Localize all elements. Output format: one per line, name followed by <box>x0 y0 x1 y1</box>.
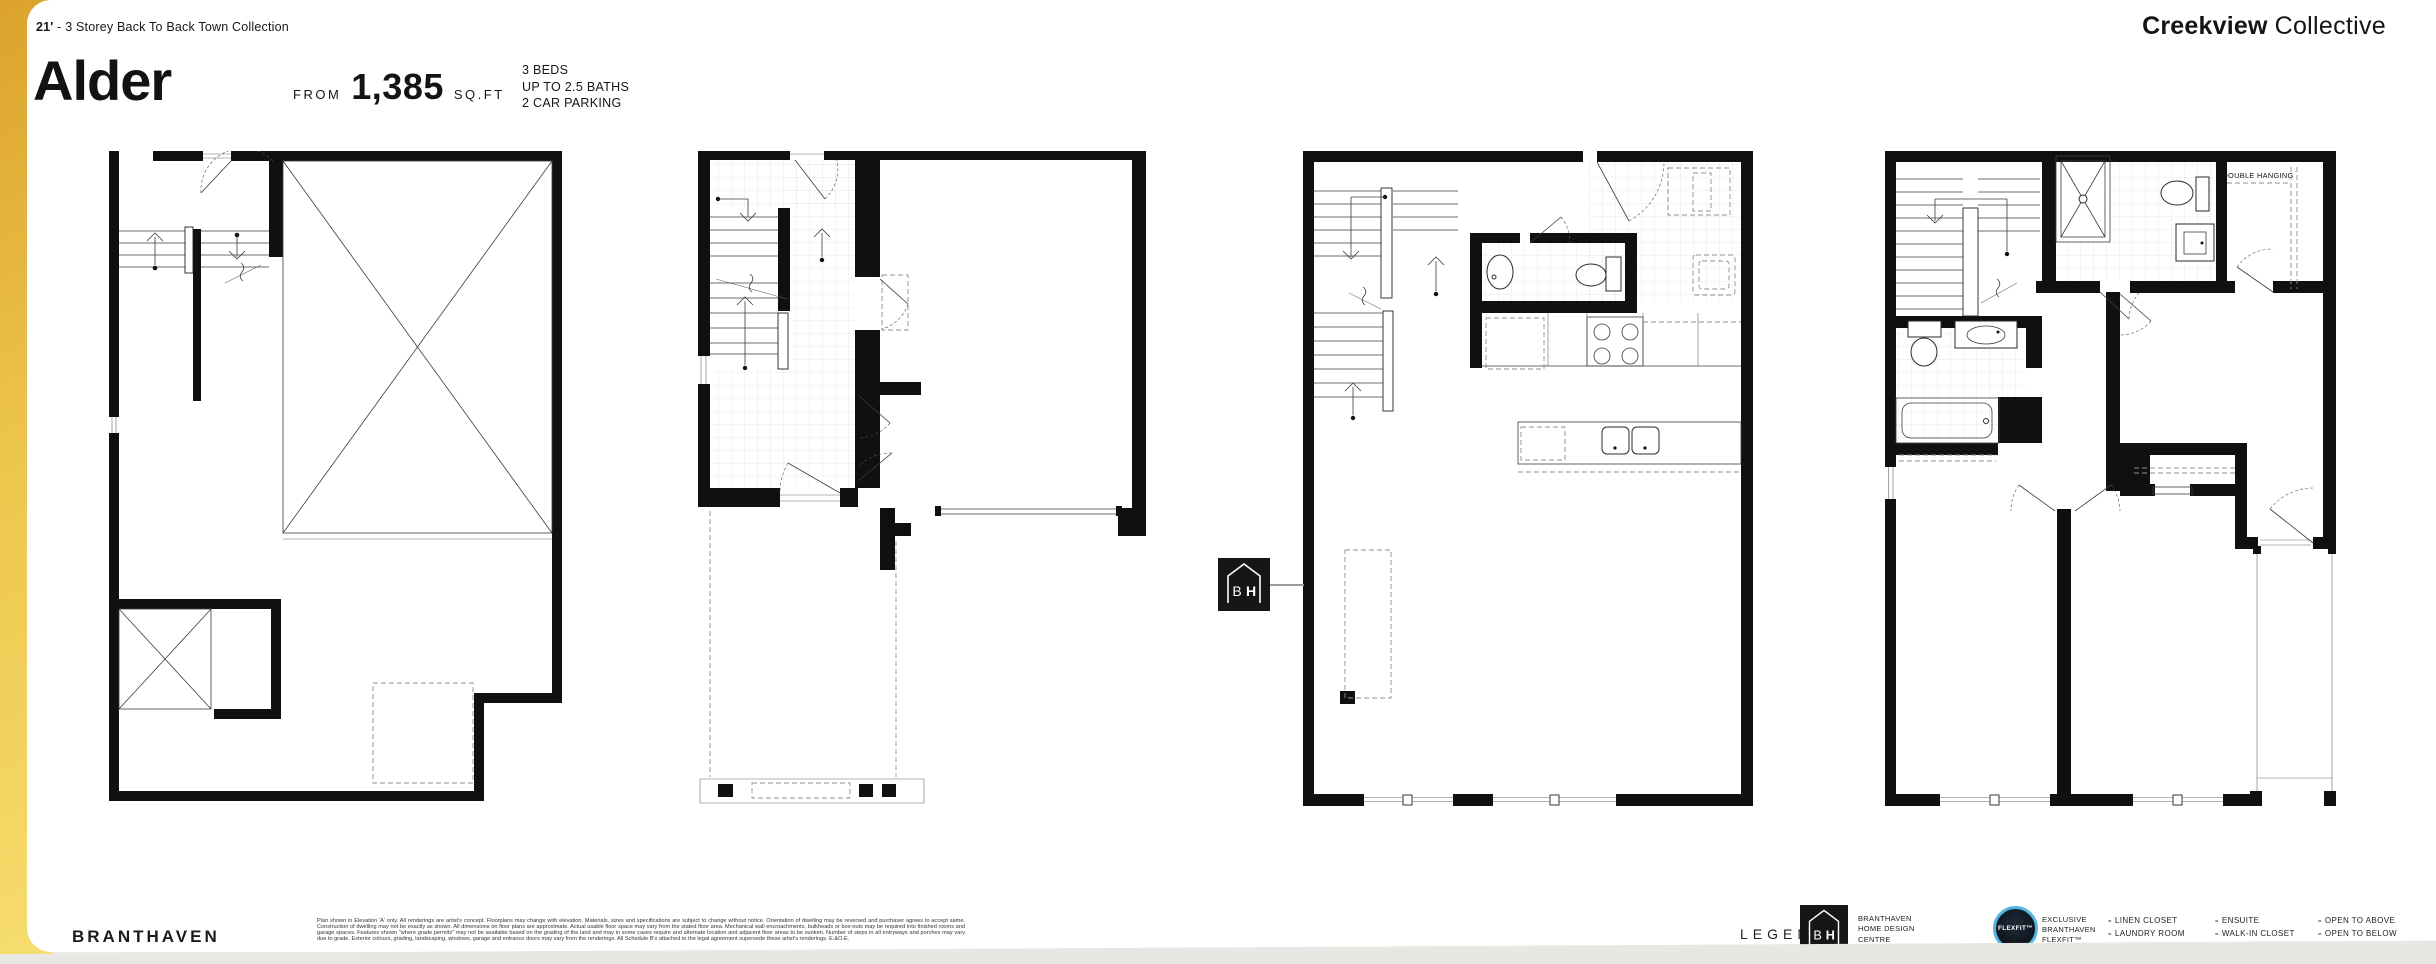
spec-beds: 3 BEDS <box>522 62 629 79</box>
floor-plan-third-floor-drawing: DOUBLE HANGING <box>1885 151 2336 810</box>
bh-line-3: CENTRE <box>1858 935 1915 945</box>
bedroom-window-left <box>1885 467 1896 499</box>
collection-line: 21' - 3 Storey Back To Back Town Collect… <box>36 20 289 34</box>
legend-column-3: =OPEN TO ABOVE =OPEN TO BELOW <box>2318 915 2397 942</box>
legend-item: =ENSUITE <box>2215 915 2295 928</box>
cold-cellar-area <box>119 609 211 709</box>
flexfit-line-2: BRANTHAVEN <box>2042 925 2096 935</box>
bh-badge-connector-line <box>1270 584 1304 586</box>
brochure-page: 21' - 3 Storey Back To Back Town Collect… <box>0 0 2436 964</box>
toilet-icon <box>2161 181 2193 205</box>
floor-plan-lower-level-drawing <box>109 151 562 801</box>
from-label: FROM <box>293 87 341 102</box>
garage-unexcavated-area <box>283 161 552 539</box>
flexfit-line-1: EXCLUSIVE <box>2042 915 2096 925</box>
toilet-icon <box>1911 338 1937 366</box>
staircase <box>1896 179 2040 316</box>
community-logo-bold: Creekview <box>2142 12 2268 40</box>
community-logo: CreekviewCollective <box>2142 12 2386 41</box>
floor-plan-third-floor: DOUBLE HANGING <box>1885 151 2336 810</box>
svg-text:B: B <box>1813 928 1821 942</box>
window-openings <box>109 151 231 433</box>
walls <box>698 151 1146 570</box>
shower-icon <box>2056 156 2110 242</box>
collection-width: 21' <box>36 20 53 34</box>
area-value: 1,385 <box>351 66 444 108</box>
spec-parking: 2 CAR PARKING <box>522 95 629 112</box>
collection-name: - 3 Storey Back To Back Town Collection <box>53 20 288 34</box>
garage-door <box>935 506 1122 516</box>
floor-plan-lower-level <box>109 151 562 801</box>
vanity-icon <box>2176 224 2214 261</box>
floor-plan-main-floor-drawing <box>1303 151 1753 806</box>
flexfit-badge-text: FLEXFIT™ <box>1998 925 2033 932</box>
specs-block: 3 BEDS UP TO 2.5 BATHS 2 CAR PARKING <box>522 62 629 112</box>
builder-logo: BRANTHAVEN <box>72 927 220 947</box>
community-logo-light: Collective <box>2275 12 2386 40</box>
legend-item: =LAUNDRY ROOM <box>2108 928 2185 941</box>
bh-line-1: BRANTHAVEN <box>1858 914 1915 924</box>
legend-item: =WALK-IN CLOSET <box>2215 928 2295 941</box>
island <box>1518 422 1741 472</box>
area-block: FROM 1,385 SQ.FT <box>293 66 505 108</box>
legend-item: =OPEN TO ABOVE <box>2318 915 2397 928</box>
dishwasher-icon <box>1486 318 1544 369</box>
legend-item: =OPEN TO BELOW <box>2318 928 2397 941</box>
closet-dashed-outline <box>1345 550 1391 698</box>
porch-outline-dashed <box>373 683 473 783</box>
floor-plan-main-floor <box>1303 151 1753 806</box>
area-unit: SQ.FT <box>454 87 505 102</box>
coat-closet <box>880 275 908 330</box>
svg-text:B: B <box>1232 583 1241 599</box>
bh-line-2: HOME DESIGN <box>1858 924 1915 934</box>
sink-icon <box>1632 427 1659 454</box>
floor-plan-ground-floor <box>692 151 1146 810</box>
double-hanging-label: DOUBLE HANGING <box>2222 171 2293 180</box>
stair-window <box>698 356 710 384</box>
walls <box>109 151 562 801</box>
bh-home-design-badge: B H <box>1218 558 1270 611</box>
floor-plan-ground-floor-drawing <box>692 151 1146 810</box>
page-title: Alder <box>33 48 171 113</box>
spec-baths: UP TO 2.5 BATHS <box>522 79 629 96</box>
toilet-icon <box>1576 264 1606 286</box>
legend-item: =LINEN CLOSET <box>2108 915 2185 928</box>
staircase <box>1314 188 1458 420</box>
stove-icon <box>1587 317 1643 366</box>
bh-house-icon: B H <box>1218 558 1270 611</box>
bh-design-centre-label: BRANTHAVEN HOME DESIGN CENTRE <box>1858 914 1915 945</box>
walk-in-closet: DOUBLE HANGING <box>2222 167 2297 292</box>
flexfit-label: EXCLUSIVE BRANTHAVEN FLEXFIT™ <box>2042 915 2096 945</box>
svg-text:H: H <box>1826 928 1835 942</box>
vanity-icon <box>1955 321 2017 348</box>
svg-text:H: H <box>1246 583 1256 599</box>
legal-disclaimer: Plan shown in Elevation 'A' only. All re… <box>317 919 965 943</box>
sink-icon <box>1602 427 1629 454</box>
